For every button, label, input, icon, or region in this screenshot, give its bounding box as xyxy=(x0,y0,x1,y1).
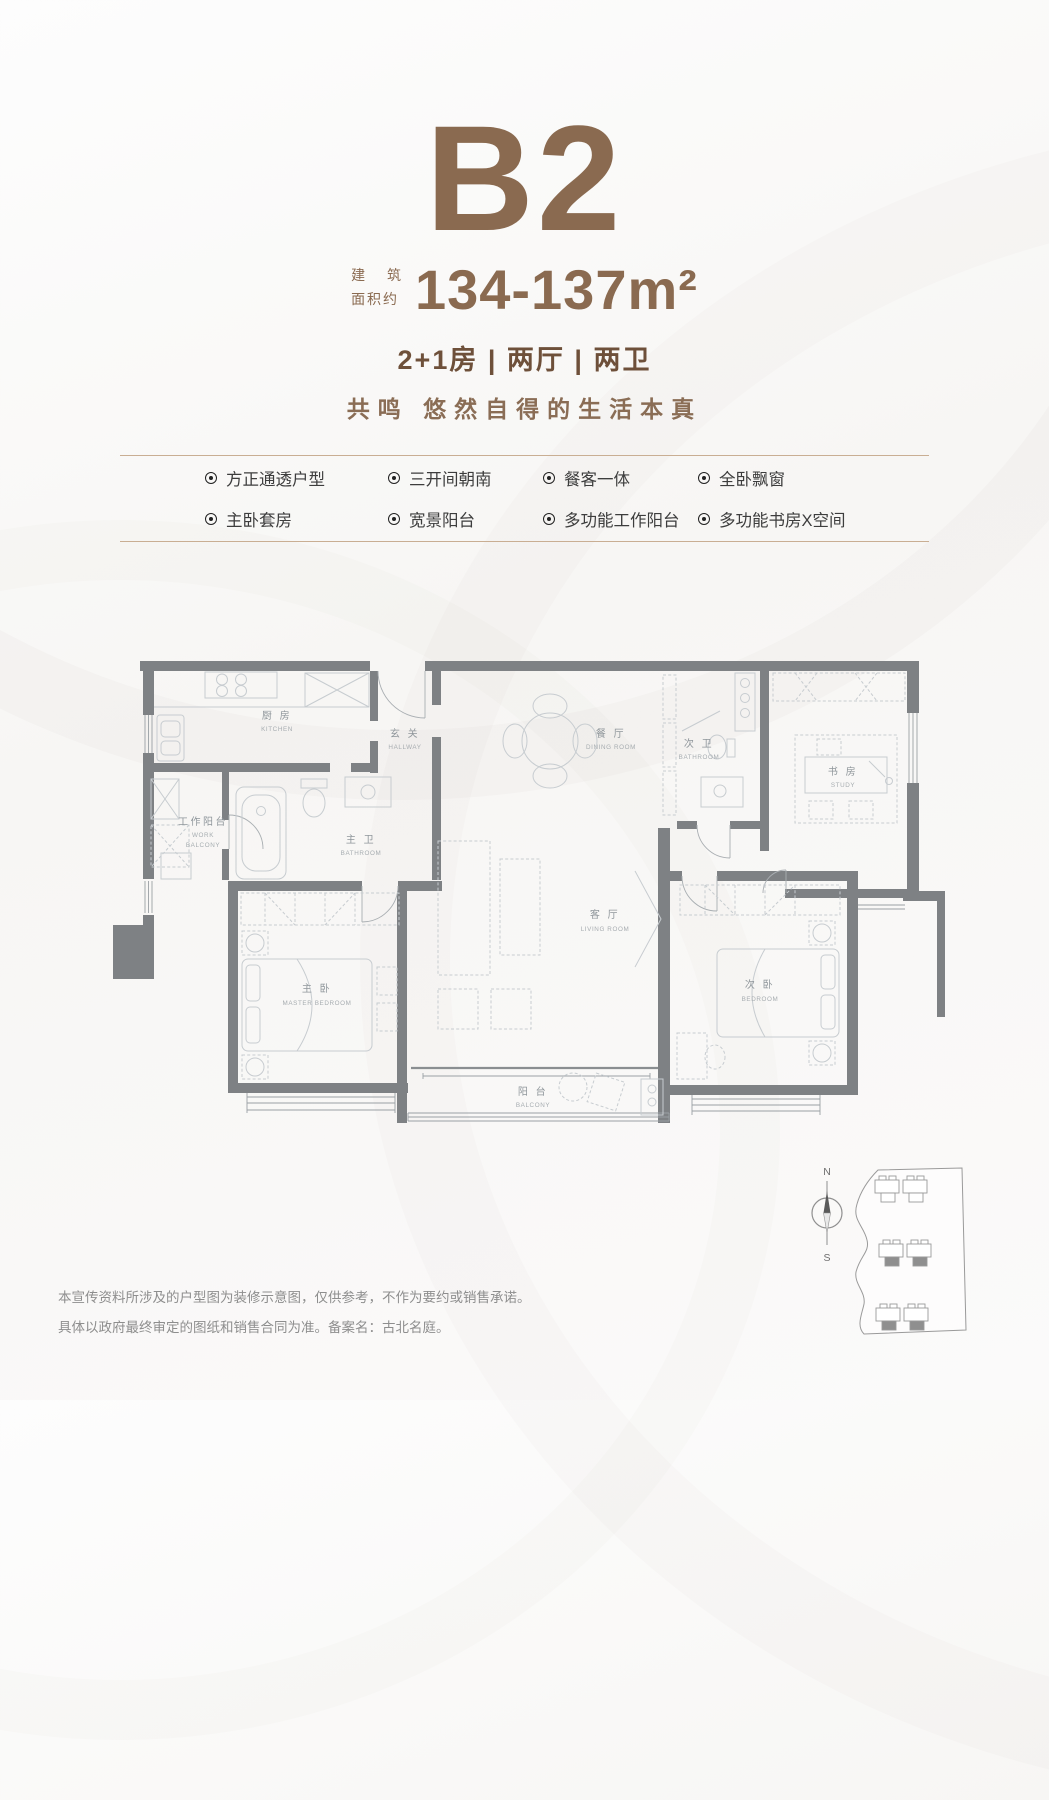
divider-top xyxy=(120,455,929,456)
room-label-bedroom2-en: BEDROOM xyxy=(742,996,779,1003)
room-label-living-cn: 客 厅 xyxy=(590,908,620,921)
compass-and-siteplan: N S xyxy=(790,1158,1010,1348)
room-label-master-en: MASTER BEDROOM xyxy=(283,1000,352,1007)
feature-label: 三开间朝南 xyxy=(409,466,492,490)
feature-item: 方正通透户型 xyxy=(205,466,388,490)
siteplan-minimap xyxy=(856,1168,966,1334)
feature-item: 餐客一体 xyxy=(543,466,698,490)
bullet-icon xyxy=(205,513,217,525)
feature-label: 主卧套房 xyxy=(226,507,292,531)
bullet-icon xyxy=(205,472,217,484)
room-label-bath2-cn: 次 卫 xyxy=(684,737,714,750)
feature-label: 餐客一体 xyxy=(564,466,630,490)
slogan: 共鸣 悠然自得的生活本真 xyxy=(0,390,1049,424)
divider-bottom xyxy=(120,541,929,542)
room-label-kitchen-cn: 厨 房 xyxy=(262,709,292,722)
area-prefix-line1: 建 筑 xyxy=(351,265,410,285)
bullet-icon xyxy=(698,513,710,525)
compass-icon: N S xyxy=(812,1166,842,1264)
compass-north-label: N xyxy=(823,1166,831,1178)
bullet-icon xyxy=(543,513,555,525)
layout-spec: 2+1房 | 两厅 | 两卫 xyxy=(0,338,1049,377)
room-label-dining-cn: 餐 厅 xyxy=(596,727,626,740)
bullet-icon xyxy=(698,472,710,484)
floorplan-walls xyxy=(113,661,945,1123)
room-label-work-balcony-cn: 工作阳台 xyxy=(178,815,228,828)
feature-item: 三开间朝南 xyxy=(388,466,543,490)
room-label-kitchen-en: KITCHEN xyxy=(261,726,293,733)
unit-title: B2 xyxy=(0,103,1049,253)
feature-item: 主卧套房 xyxy=(205,507,388,531)
room-label-study-cn: 书 房 xyxy=(828,765,858,778)
disclaimer-line2: 具体以政府最终审定的图纸和销售合同为准。备案名：古北名庭。 xyxy=(58,1313,531,1343)
room-label-balcony-en: BALCONY xyxy=(516,1102,550,1109)
room-label-balcony-cn: 阳 台 xyxy=(518,1085,548,1098)
room-label-dining-en: DINING ROOM xyxy=(586,744,636,751)
bullet-icon xyxy=(388,472,400,484)
bullet-icon xyxy=(388,513,400,525)
disclaimer: 本宣传资料所涉及的户型图为装修示意图，仅供参考，不作为要约或销售承诺。 具体以政… xyxy=(58,1283,531,1343)
room-label-living-en: LIVING ROOM xyxy=(581,926,630,933)
room-label-work-balcony-en2: BALCONY xyxy=(186,842,220,849)
feature-label: 多功能书房X空间 xyxy=(719,507,846,531)
feature-item: 宽景阳台 xyxy=(388,507,543,531)
area-prefix-line2: 面积约 xyxy=(351,289,403,309)
bullet-icon xyxy=(543,472,555,484)
room-label-master-cn: 主 卧 xyxy=(302,982,332,995)
area-value: 134-137m² xyxy=(415,264,698,316)
area-row: 建 筑 面积约 134-137m² xyxy=(0,264,1049,316)
feature-item: 全卧飘窗 xyxy=(698,466,865,490)
room-label-hallway-en: HALLWAY xyxy=(388,744,421,751)
floorplan-drawing: 厨 房 KITCHEN 玄 关 HALLWAY 餐 厅 DINING ROOM … xyxy=(105,645,945,1145)
room-label-work-balcony-en1: WORK xyxy=(192,832,214,839)
room-label-bath2-en: BATHROOM xyxy=(679,754,720,761)
compass-south-label: S xyxy=(823,1252,830,1264)
feature-label: 全卧飘窗 xyxy=(719,466,785,490)
feature-label: 多功能工作阳台 xyxy=(564,507,680,531)
feature-item: 多功能书房X空间 xyxy=(698,507,865,531)
disclaimer-line1: 本宣传资料所涉及的户型图为装修示意图，仅供参考，不作为要约或销售承诺。 xyxy=(58,1283,531,1313)
room-label-bath1-en: BATHROOM xyxy=(341,850,382,857)
room-label-bedroom2-cn: 次 卧 xyxy=(745,978,775,991)
feature-label: 方正通透户型 xyxy=(226,466,325,490)
feature-list: 方正通透户型 三开间朝南 餐客一体 全卧飘窗 主卧套房 宽景阳台 多功能工作阳台… xyxy=(205,466,865,531)
room-label-hallway-cn: 玄 关 xyxy=(390,727,420,740)
feature-label: 宽景阳台 xyxy=(409,507,475,531)
feature-item: 多功能工作阳台 xyxy=(543,507,698,531)
room-label-bath1-cn: 主 卫 xyxy=(346,834,376,846)
area-prefix: 建 筑 面积约 xyxy=(351,265,401,316)
room-label-study-en: STUDY xyxy=(831,782,856,789)
